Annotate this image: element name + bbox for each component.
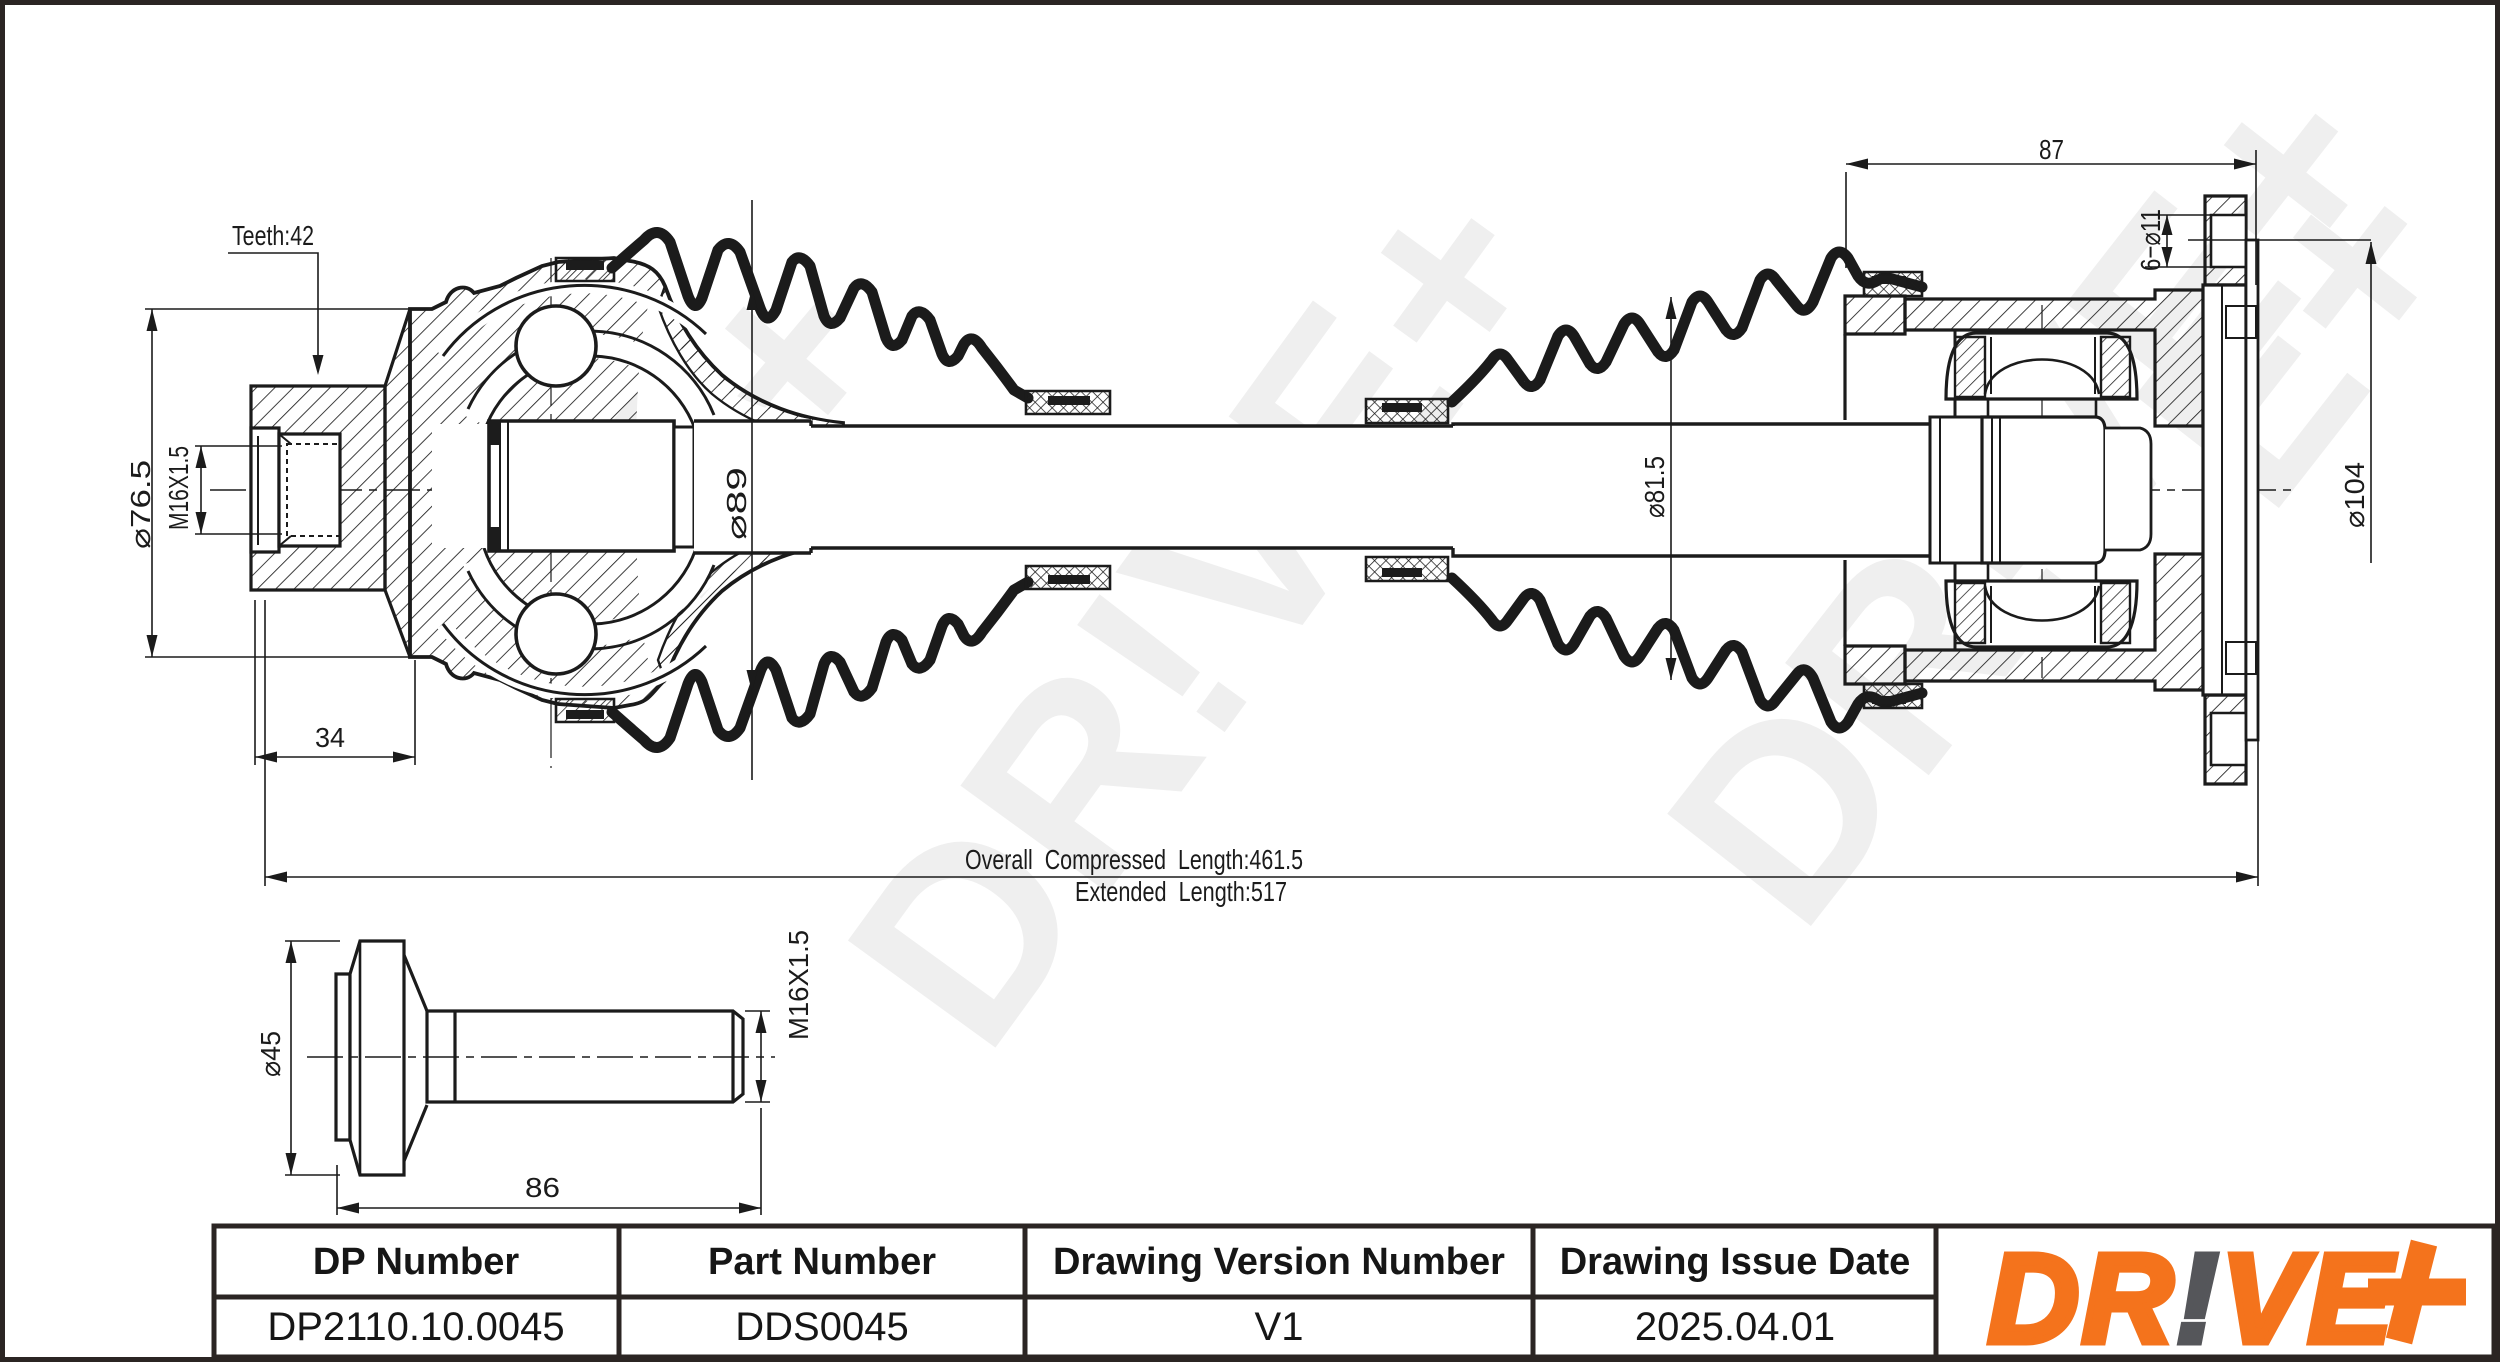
svg-text:V1: V1 xyxy=(1255,1305,1304,1349)
svg-text:Drawing Issue Date: Drawing Issue Date xyxy=(1560,1241,1911,1283)
svg-text:87: 87 xyxy=(2039,134,2064,165)
svg-text:Teeth:42: Teeth:42 xyxy=(232,220,314,251)
svg-text:⌀104: ⌀104 xyxy=(2339,462,2370,528)
svg-text:⌀89: ⌀89 xyxy=(721,467,752,540)
svg-text:34: 34 xyxy=(315,722,345,753)
svg-text:DR!VE: DR!VE xyxy=(1988,1228,2396,1362)
svg-text:M16X1.5: M16X1.5 xyxy=(783,930,814,1040)
svg-text:⌀76.5: ⌀76.5 xyxy=(125,460,156,549)
svg-text:DP Number: DP Number xyxy=(313,1241,519,1283)
svg-text:Extended Length:517: Extended Length:517 xyxy=(1075,876,1287,907)
svg-text:Part Number: Part Number xyxy=(708,1241,936,1283)
svg-text:86: 86 xyxy=(525,1172,560,1203)
svg-text:Drawing Version Number: Drawing Version Number xyxy=(1053,1241,1505,1283)
svg-text:6−⌀11: 6−⌀11 xyxy=(2135,209,2166,271)
svg-text:DP2110.10.0045: DP2110.10.0045 xyxy=(267,1305,564,1349)
svg-text:M16X1.5: M16X1.5 xyxy=(163,446,194,530)
svg-text:DDS0045: DDS0045 xyxy=(735,1305,908,1349)
svg-text:Overall Compressed Length:46: Overall Compressed Length:461.5 xyxy=(965,844,1303,875)
svg-text:⌀81.5: ⌀81.5 xyxy=(1639,456,1670,518)
svg-text:2025.04.01: 2025.04.01 xyxy=(1635,1305,1835,1349)
svg-text:⌀45: ⌀45 xyxy=(255,1031,286,1077)
